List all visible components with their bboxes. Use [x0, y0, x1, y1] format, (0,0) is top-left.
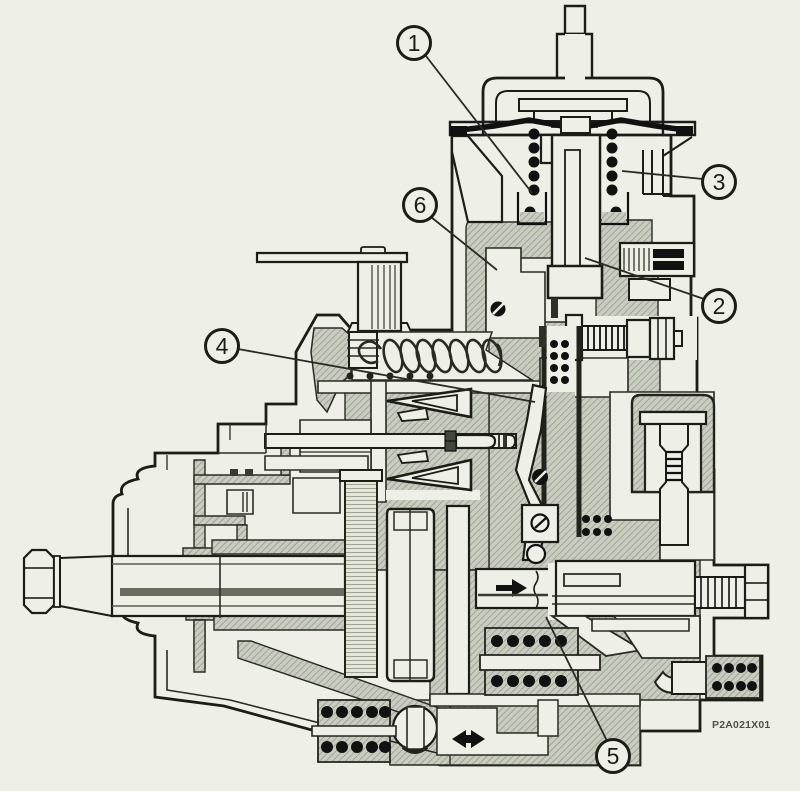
svg-text:5: 5	[607, 743, 620, 769]
svg-text:6: 6	[414, 192, 427, 218]
svg-text:2: 2	[713, 293, 726, 319]
svg-text:P2A021X01: P2A021X01	[712, 719, 770, 731]
svg-text:4: 4	[216, 333, 229, 359]
svg-text:3: 3	[713, 169, 726, 195]
svg-text:1: 1	[408, 30, 421, 56]
